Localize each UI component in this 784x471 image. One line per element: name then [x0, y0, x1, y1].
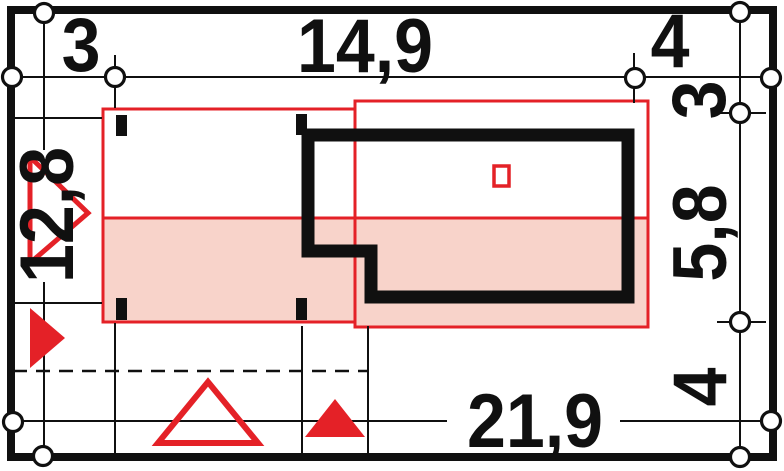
tick-top-mid — [296, 114, 307, 135]
zone-left-lower-pink — [103, 218, 355, 322]
dim-label-right-5-8: 5,8 — [658, 184, 742, 281]
open-triangle-marker-bottom — [158, 382, 258, 443]
tick-bottom-left — [116, 298, 127, 320]
site-plan-drawing: 3 14,9 4 21,9 12,8 3 5,8 4 — [0, 0, 784, 471]
survey-point-dim-right-2 — [731, 313, 750, 332]
survey-point-bottom-left — [34, 447, 53, 466]
dim-label-top-3: 3 — [62, 3, 101, 87]
dim-label-right-4: 4 — [658, 367, 742, 406]
survey-point-top-left — [35, 4, 54, 23]
zone-left-upper — [103, 109, 355, 218]
chimney-square-marker — [494, 166, 509, 186]
filled-triangle-marker-bottom — [305, 399, 365, 437]
dim-label-left-12-8: 12,8 — [5, 147, 89, 283]
survey-point-dim-top-2 — [626, 69, 645, 88]
survey-point-left-upper — [3, 68, 22, 87]
survey-point-bottom-right — [731, 448, 750, 467]
filled-triangle-marker-left — [30, 308, 65, 368]
survey-point-top-right — [731, 3, 750, 22]
dim-label-right-3: 3 — [657, 81, 741, 120]
survey-point-right-lower — [762, 412, 781, 431]
tick-bottom-mid — [296, 298, 307, 320]
survey-point-right-upper — [762, 69, 781, 88]
dim-label-top-14-9: 14,9 — [297, 4, 433, 88]
dim-label-bottom-21-9: 21,9 — [467, 379, 603, 463]
zone-right-upper — [355, 101, 648, 218]
zone-right-lower-pink — [355, 218, 648, 327]
survey-point-left-lower — [4, 413, 23, 432]
tick-top-left — [116, 115, 127, 136]
site-plan-canvas: 3 14,9 4 21,9 12,8 3 5,8 4 — [0, 0, 784, 471]
survey-point-dim-top-1 — [106, 68, 125, 87]
dim-label-top-4: 4 — [651, 0, 690, 84]
